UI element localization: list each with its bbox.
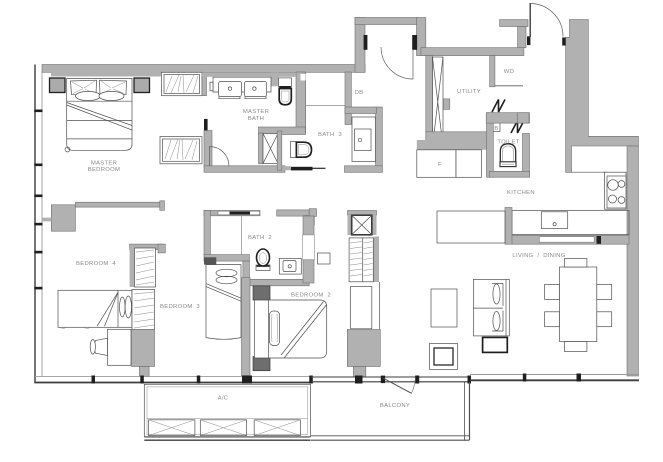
svg-text:F: F [438, 162, 442, 168]
svg-text:UTILITY: UTILITY [457, 89, 481, 95]
svg-text:BEDROOM: BEDROOM [88, 167, 121, 173]
svg-text:BATH 2: BATH 2 [248, 235, 272, 241]
svg-text:WD: WD [504, 69, 514, 75]
svg-text:MASTER: MASTER [91, 161, 117, 167]
svg-text:BEDROOM 3: BEDROOM 3 [160, 304, 200, 310]
svg-text:BEDROOM 4: BEDROOM 4 [76, 261, 116, 267]
svg-text:A/C: A/C [218, 396, 229, 402]
svg-text:BEDROOM 2: BEDROOM 2 [291, 293, 331, 299]
svg-text:B: B [494, 126, 498, 132]
svg-text:MASTER: MASTER [243, 109, 269, 115]
svg-text:BATH: BATH [248, 116, 264, 122]
svg-text:BALCONY: BALCONY [380, 403, 410, 409]
svg-text:DB: DB [355, 90, 364, 96]
svg-text:KITCHEN: KITCHEN [507, 190, 535, 196]
svg-text:LIVING / DINING: LIVING / DINING [512, 253, 565, 259]
svg-text:BATH 3: BATH 3 [318, 132, 342, 138]
